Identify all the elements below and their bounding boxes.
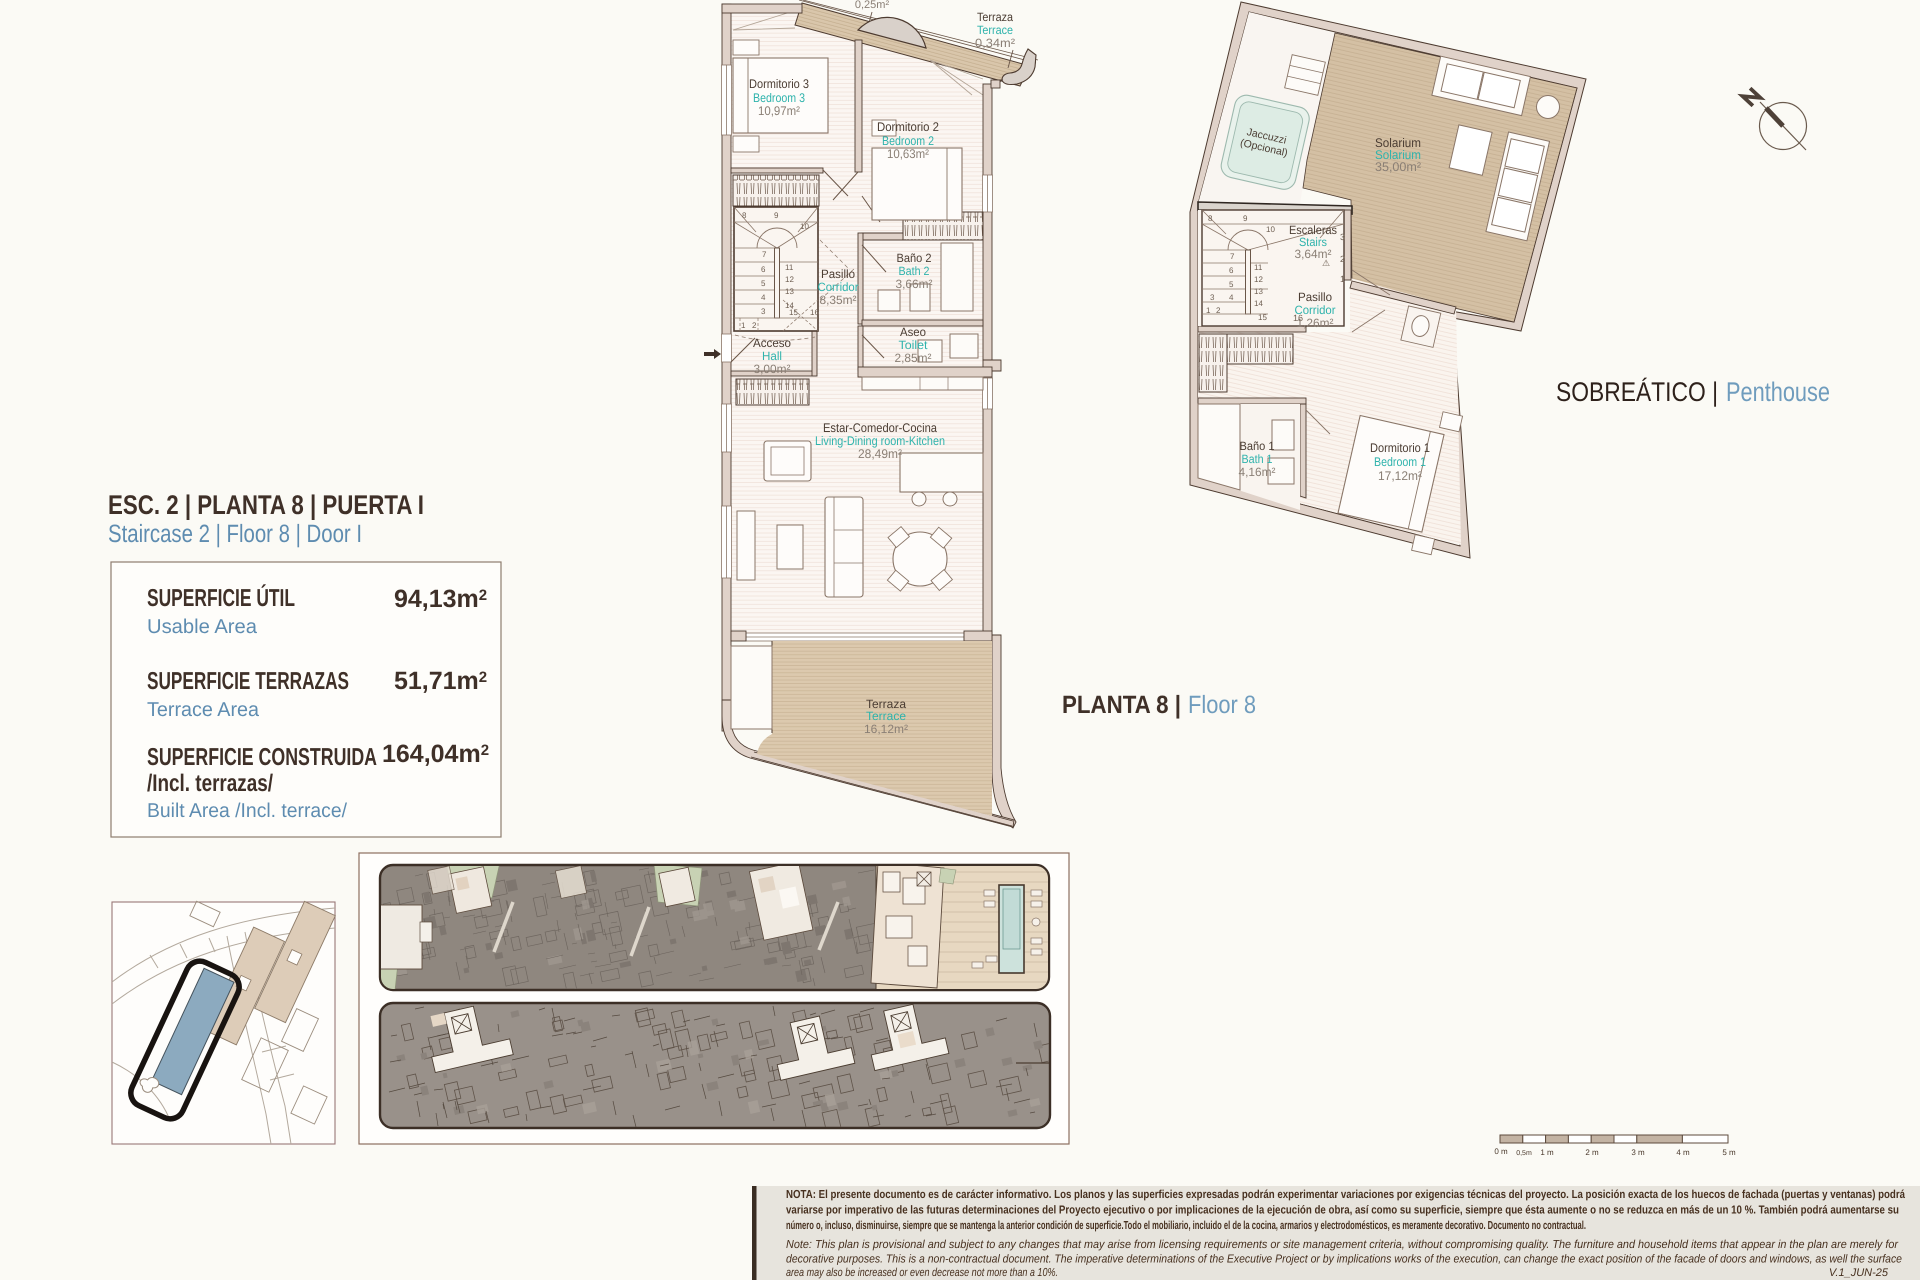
- svg-text:Terrace Area: Terrace Area: [147, 699, 260, 721]
- svg-text:7: 7: [1230, 252, 1235, 261]
- svg-text:94,13m2: 94,13m2: [394, 585, 487, 613]
- svg-text:10: 10: [1266, 225, 1275, 234]
- svg-text:PLANTA 8 |: PLANTA 8 |: [1062, 691, 1181, 719]
- svg-text:SUPERFICIE TERRAZAS: SUPERFICIE TERRAZAS: [147, 668, 349, 695]
- svg-text:Bedroom 3: Bedroom 3: [753, 91, 805, 105]
- svg-text:8: 8: [1208, 214, 1213, 223]
- svg-text:0,5m: 0,5m: [1516, 1150, 1532, 1157]
- svg-text:V.1_JUN-25: V.1_JUN-25: [1829, 1267, 1889, 1279]
- svg-text:NOTA: El presente documento e: NOTA: El presente documento es de caráct…: [786, 1188, 1905, 1201]
- svg-text:28,49m²: 28,49m²: [858, 447, 902, 461]
- svg-text:17,12m²: 17,12m²: [1378, 469, 1422, 483]
- svg-text:15: 15: [1258, 313, 1267, 322]
- svg-text:0,25m²: 0,25m²: [855, 0, 890, 11]
- svg-text:area may also be increased or: area may also be increased or even decre…: [786, 1266, 1058, 1279]
- svg-text:Pasillo: Pasillo: [821, 267, 855, 281]
- svg-text:164,04m2: 164,04m2: [382, 740, 489, 768]
- svg-text:5: 5: [1229, 280, 1234, 289]
- svg-text:Terrace: Terrace: [977, 23, 1013, 37]
- svg-text:Baño 2: Baño 2: [897, 251, 932, 265]
- svg-text:1 m: 1 m: [1540, 1148, 1554, 1157]
- svg-text:2: 2: [1340, 254, 1345, 264]
- svg-text:14: 14: [1254, 299, 1263, 308]
- svg-text:SUPERFICIE ÚTIL: SUPERFICIE ÚTIL: [147, 584, 295, 612]
- svg-text:Toilet: Toilet: [899, 338, 929, 352]
- svg-text:16,12m²: 16,12m²: [864, 722, 908, 736]
- svg-text:51,71m2: 51,71m2: [394, 667, 487, 695]
- svg-text:número o, incluso, disminuirse: número o, incluso, disminuirse, siempre …: [786, 1219, 1586, 1232]
- svg-text:16: 16: [1293, 313, 1303, 323]
- svg-text:4 m: 4 m: [1676, 1148, 1690, 1157]
- svg-text:3 m: 3 m: [1631, 1148, 1645, 1157]
- svg-text:⚠: ⚠: [1322, 258, 1330, 268]
- svg-text:10,97m²: 10,97m²: [758, 104, 800, 118]
- svg-text:11: 11: [1254, 263, 1263, 272]
- svg-text:decorative purposes. This is a: decorative purposes. This is a non-contr…: [786, 1253, 1902, 1266]
- svg-text:13: 13: [785, 287, 794, 296]
- svg-text:Note: This plan is provisional: Note: This plan is provisional and subje…: [786, 1238, 1899, 1251]
- svg-text:15: 15: [789, 308, 798, 317]
- svg-text:3: 3: [1340, 232, 1345, 242]
- svg-text:12: 12: [1254, 275, 1263, 284]
- svg-text:Terraza: Terraza: [977, 10, 1013, 24]
- svg-text:16: 16: [810, 308, 819, 317]
- svg-text:Baño 1: Baño 1: [1240, 439, 1275, 453]
- svg-text:0,34m²: 0,34m²: [975, 36, 1015, 50]
- svg-text:Bath 1: Bath 1: [1242, 452, 1273, 466]
- svg-text:4: 4: [1229, 293, 1234, 302]
- svg-text:3: 3: [761, 307, 766, 316]
- svg-text:3,66m²: 3,66m²: [896, 277, 933, 291]
- svg-text:5: 5: [761, 279, 766, 288]
- svg-text:Bedroom 1: Bedroom 1: [1374, 455, 1426, 469]
- svg-text:2 m: 2 m: [1585, 1148, 1599, 1157]
- svg-text:Pasillo: Pasillo: [1298, 290, 1332, 304]
- svg-text:Hall: Hall: [762, 349, 782, 363]
- svg-text:1: 1: [1206, 306, 1211, 315]
- svg-text:8,35m²: 8,35m²: [820, 293, 857, 307]
- svg-text:Dormitorio 3: Dormitorio 3: [749, 77, 809, 91]
- svg-text:9: 9: [1243, 214, 1248, 223]
- svg-text:Estar-Comedor-Cocina: Estar-Comedor-Cocina: [823, 421, 937, 435]
- svg-text:SUPERFICIE CONSTRUIDA: SUPERFICIE CONSTRUIDA: [147, 744, 377, 771]
- svg-text:Acceso: Acceso: [753, 336, 791, 350]
- svg-text:4,16m²: 4,16m²: [1239, 465, 1276, 479]
- svg-text:3: 3: [1210, 293, 1215, 302]
- svg-text:7: 7: [762, 250, 767, 259]
- svg-text:SOBREÁTICO |: SOBREÁTICO |: [1556, 377, 1718, 407]
- svg-text:variarse por imperativo de las: variarse por imperativo de las futuras d…: [786, 1204, 1899, 1217]
- svg-text:13: 13: [1254, 287, 1263, 296]
- svg-text:9: 9: [774, 211, 779, 220]
- svg-text:2,85m²: 2,85m²: [895, 351, 932, 365]
- svg-text:Floor 8: Floor 8: [1188, 691, 1256, 719]
- svg-text:ESC. 2 | PLANTA 8 | PUERTA I: ESC. 2 | PLANTA 8 | PUERTA I: [108, 490, 424, 520]
- svg-text:8: 8: [742, 211, 747, 220]
- svg-text:10: 10: [800, 222, 809, 231]
- svg-text:12: 12: [785, 275, 794, 284]
- svg-text:Staircase 2 | Floor 8 | Door I: Staircase 2 | Floor 8 | Door I: [108, 520, 362, 548]
- svg-text:/Incl. terrazas/: /Incl. terrazas/: [147, 770, 273, 797]
- svg-text:3,00m²: 3,00m²: [754, 362, 791, 376]
- svg-text:Terrace: Terrace: [866, 709, 906, 723]
- svg-text:Living-Dining room-Kitchen: Living-Dining room-Kitchen: [815, 434, 945, 448]
- svg-text:Usable Area: Usable Area: [147, 616, 258, 638]
- svg-text:Dormitorio 2: Dormitorio 2: [877, 120, 939, 134]
- svg-text:1: 1: [741, 321, 746, 330]
- svg-text:4: 4: [761, 293, 766, 302]
- svg-text:Bath 2: Bath 2: [899, 264, 930, 278]
- svg-text:6: 6: [1229, 266, 1234, 275]
- svg-text:Penthouse: Penthouse: [1726, 377, 1830, 407]
- svg-text:35,00m²: 35,00m²: [1375, 160, 1421, 174]
- svg-text:6: 6: [761, 265, 766, 274]
- svg-text:1: 1: [1340, 274, 1345, 284]
- svg-text:Built Area /Incl. terrace/: Built Area /Incl. terrace/: [147, 800, 347, 822]
- svg-text:2: 2: [752, 321, 757, 330]
- svg-text:Corridor: Corridor: [818, 280, 859, 294]
- svg-text:0 m: 0 m: [1494, 1147, 1508, 1156]
- svg-text:2: 2: [1216, 306, 1221, 315]
- svg-text:10,63m²: 10,63m²: [887, 147, 929, 161]
- svg-text:5 m: 5 m: [1722, 1148, 1736, 1157]
- svg-text:Bedroom 2: Bedroom 2: [882, 134, 934, 148]
- svg-text:Aseo: Aseo: [900, 325, 926, 339]
- svg-text:Dormitorio 1: Dormitorio 1: [1370, 441, 1430, 455]
- svg-text:11: 11: [785, 263, 794, 272]
